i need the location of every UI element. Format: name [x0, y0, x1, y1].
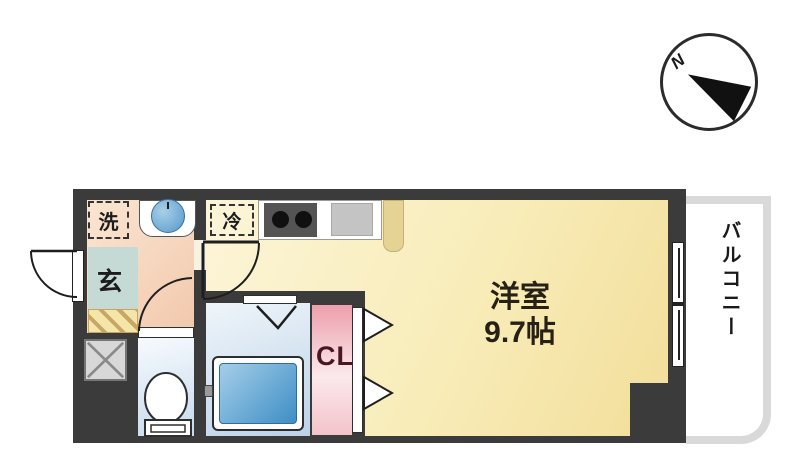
washroom-doorway [194, 240, 206, 270]
toilet-door [138, 327, 194, 338]
entrance-label: 玄 [97, 262, 122, 298]
refrigerator-label: 冷 [222, 207, 241, 234]
entrance-step [88, 309, 138, 333]
toilet-room [138, 338, 194, 436]
window-sash-divider [673, 302, 683, 306]
refrigerator-space: 冷 [210, 204, 254, 236]
bathtub-inner [219, 363, 297, 424]
washer-label: 洗 [99, 206, 119, 235]
shaft-x-icon [86, 341, 125, 379]
stove-icon [264, 203, 317, 237]
kitchen-sink-icon [331, 203, 373, 236]
kitchen-cabinet [383, 200, 404, 252]
window-pane-line [678, 310, 680, 360]
floorplan: 冷 洗 バルコニー 玄 [0, 0, 800, 459]
bathroom-door [243, 295, 297, 304]
main-room-label: 洋室 9.7帖 [420, 280, 620, 350]
washer-space: 洗 [88, 201, 129, 239]
bathtub-faucet-icon [204, 385, 213, 397]
burner-icon [272, 211, 289, 228]
compass: N [660, 33, 758, 131]
window-pane-line [678, 248, 680, 298]
entrance-door-swing-arc [31, 251, 77, 297]
pipe-shaft-box [84, 339, 127, 381]
washbasin-icon [151, 199, 185, 233]
main-room-size: 9.7帖 [420, 315, 620, 350]
balcony-window [672, 242, 684, 367]
main-room-name: 洋室 [420, 280, 620, 315]
closet-label: CL [316, 341, 354, 372]
burner-icon [295, 211, 312, 228]
balcony-label: バルコニー [715, 220, 744, 430]
bottom-right-wall-notch [630, 383, 686, 436]
entrance-door [72, 250, 84, 302]
